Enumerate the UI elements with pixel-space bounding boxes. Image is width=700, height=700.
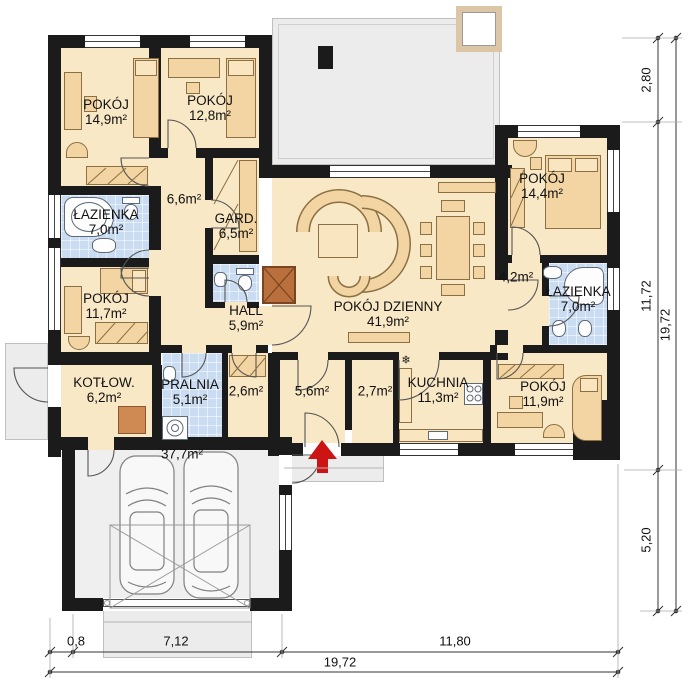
- door-opening: [497, 345, 523, 353]
- armchair: [66, 142, 88, 158]
- window: [518, 125, 580, 138]
- wardrobe: [86, 166, 148, 185]
- room-label-garage: 37,7m²: [161, 446, 203, 461]
- room-label-kuchnia: KUCHNIA11,3m²: [408, 375, 469, 405]
- chimney: [318, 46, 333, 69]
- roof-window: [456, 6, 502, 52]
- room-label-lazienka-right: ŁAZIENKA7,0m²: [545, 284, 610, 314]
- window: [48, 248, 61, 330]
- desk: [168, 58, 220, 78]
- vestibule-floor: [280, 360, 345, 443]
- terrace-window: [330, 165, 430, 178]
- dining-chair: [473, 244, 485, 257]
- corridor-6-6-floor: [161, 156, 205, 302]
- room-label-pokoj-12-8: POKÓJ12,8m²: [187, 93, 233, 123]
- garage-floor: [75, 450, 279, 598]
- window: [607, 150, 620, 212]
- sink: [214, 272, 227, 287]
- door-opening: [149, 158, 161, 186]
- entry-porch: [284, 456, 384, 482]
- dim-right-19-72: 19,72: [658, 309, 673, 342]
- boiler: [118, 406, 146, 434]
- door-opening: [88, 437, 114, 450]
- dining-chair: [420, 266, 432, 279]
- toilet: [122, 197, 140, 204]
- door-opening: [182, 345, 206, 353]
- desk: [64, 72, 82, 130]
- fireplace: [262, 266, 296, 304]
- pillow: [580, 378, 598, 392]
- window: [48, 195, 61, 238]
- room-label-pokoj-14-4: POKÓJ14,4m²: [519, 171, 565, 201]
- dining-table: [436, 216, 470, 280]
- pillow: [135, 60, 157, 76]
- wardrobe: [498, 364, 564, 379]
- dim-right-5-20: 5,20: [639, 527, 654, 552]
- window: [400, 443, 458, 456]
- dining-chair: [420, 244, 432, 257]
- washer: [162, 416, 188, 440]
- window: [85, 35, 140, 48]
- dining-chair: [441, 284, 465, 296]
- door-opening: [495, 280, 508, 330]
- room-label-5-6: 5,6m²: [295, 383, 330, 398]
- room-label-kotlownia: KOTŁOW.6,2m²: [73, 375, 135, 405]
- room-label-hall: HALL5,9m²: [229, 303, 264, 333]
- wardrobe: [95, 322, 148, 344]
- entrance-door-opening: [303, 443, 341, 456]
- toilet-bowl: [238, 275, 252, 291]
- room-label-2-6: 2,6m²: [229, 383, 264, 398]
- pillow: [228, 60, 254, 76]
- room-label-lazienka-left: ŁAZIENKA7,0m²: [73, 207, 138, 237]
- garage-window: [279, 495, 292, 550]
- snowflake-icon: ❄: [401, 354, 410, 367]
- room-label-gard: GARD.6,5m²: [215, 211, 258, 241]
- pillow: [132, 270, 146, 292]
- coffee-table: [318, 224, 358, 258]
- toilet: [236, 268, 254, 275]
- sink: [92, 238, 116, 253]
- dining-chair: [420, 222, 432, 235]
- door-opening: [149, 268, 161, 296]
- dim-right-11-72: 11,72: [639, 280, 654, 312]
- wardrobe: [229, 355, 266, 377]
- tv-bench: [438, 182, 496, 193]
- door-opening: [168, 148, 196, 158]
- room-2-7-floor: [352, 360, 393, 443]
- room-label-pokoj-11-9: POKÓJ11,9m²: [520, 379, 566, 409]
- garage-door: [103, 599, 250, 607]
- dim-bottom-19-72: 19,72: [324, 655, 357, 670]
- desk: [64, 286, 82, 334]
- room-label-pralnia: PRALNIA5,1m²: [161, 377, 219, 407]
- dim-bottom-7-12: 7,12: [163, 634, 188, 649]
- door-opening: [205, 200, 213, 228]
- nightstand: [530, 157, 542, 170]
- window: [190, 35, 245, 48]
- door-opening: [232, 345, 256, 353]
- room-label-pokoj-dzienny: POKÓJ DZIENNY41,9m²: [334, 299, 443, 329]
- garage-side-door-opening: [279, 455, 292, 485]
- window: [515, 443, 573, 456]
- room-label-pokoj-11-7: POKÓJ11,7m²: [83, 291, 129, 321]
- room-label-pokoj-14-9: POKÓJ14,9m²: [83, 97, 129, 127]
- pillow: [548, 158, 572, 172]
- room-label-2-7: 2,7m²: [358, 383, 393, 398]
- floor-plan: POKÓJ14,9m² POKÓJ12,8m² ŁAZIENKA7,0m² 6,…: [0, 0, 700, 700]
- dim-bottom-11-80: 11,80: [439, 634, 471, 649]
- kitchen-sink: [428, 431, 448, 440]
- bidet-bowl: [578, 320, 592, 337]
- door-opening: [48, 365, 61, 407]
- sink: [543, 266, 562, 279]
- dim-bottom-0-8: 0,8: [67, 634, 85, 649]
- dining-chair: [473, 222, 485, 235]
- room-label-corridor-6-6: 6,6m²: [167, 191, 202, 206]
- door-opening: [512, 255, 540, 263]
- toilet-bowl: [552, 320, 566, 337]
- side-porch: [5, 343, 48, 440]
- dim-right-2-80: 2,80: [639, 67, 654, 92]
- dining-chair: [441, 200, 465, 212]
- door-opening: [298, 352, 328, 360]
- room-label-4-2: 4,2m²: [499, 269, 534, 284]
- pillow: [575, 158, 598, 172]
- dining-chair: [473, 266, 485, 279]
- desk: [497, 412, 543, 428]
- sideboard: [348, 332, 410, 343]
